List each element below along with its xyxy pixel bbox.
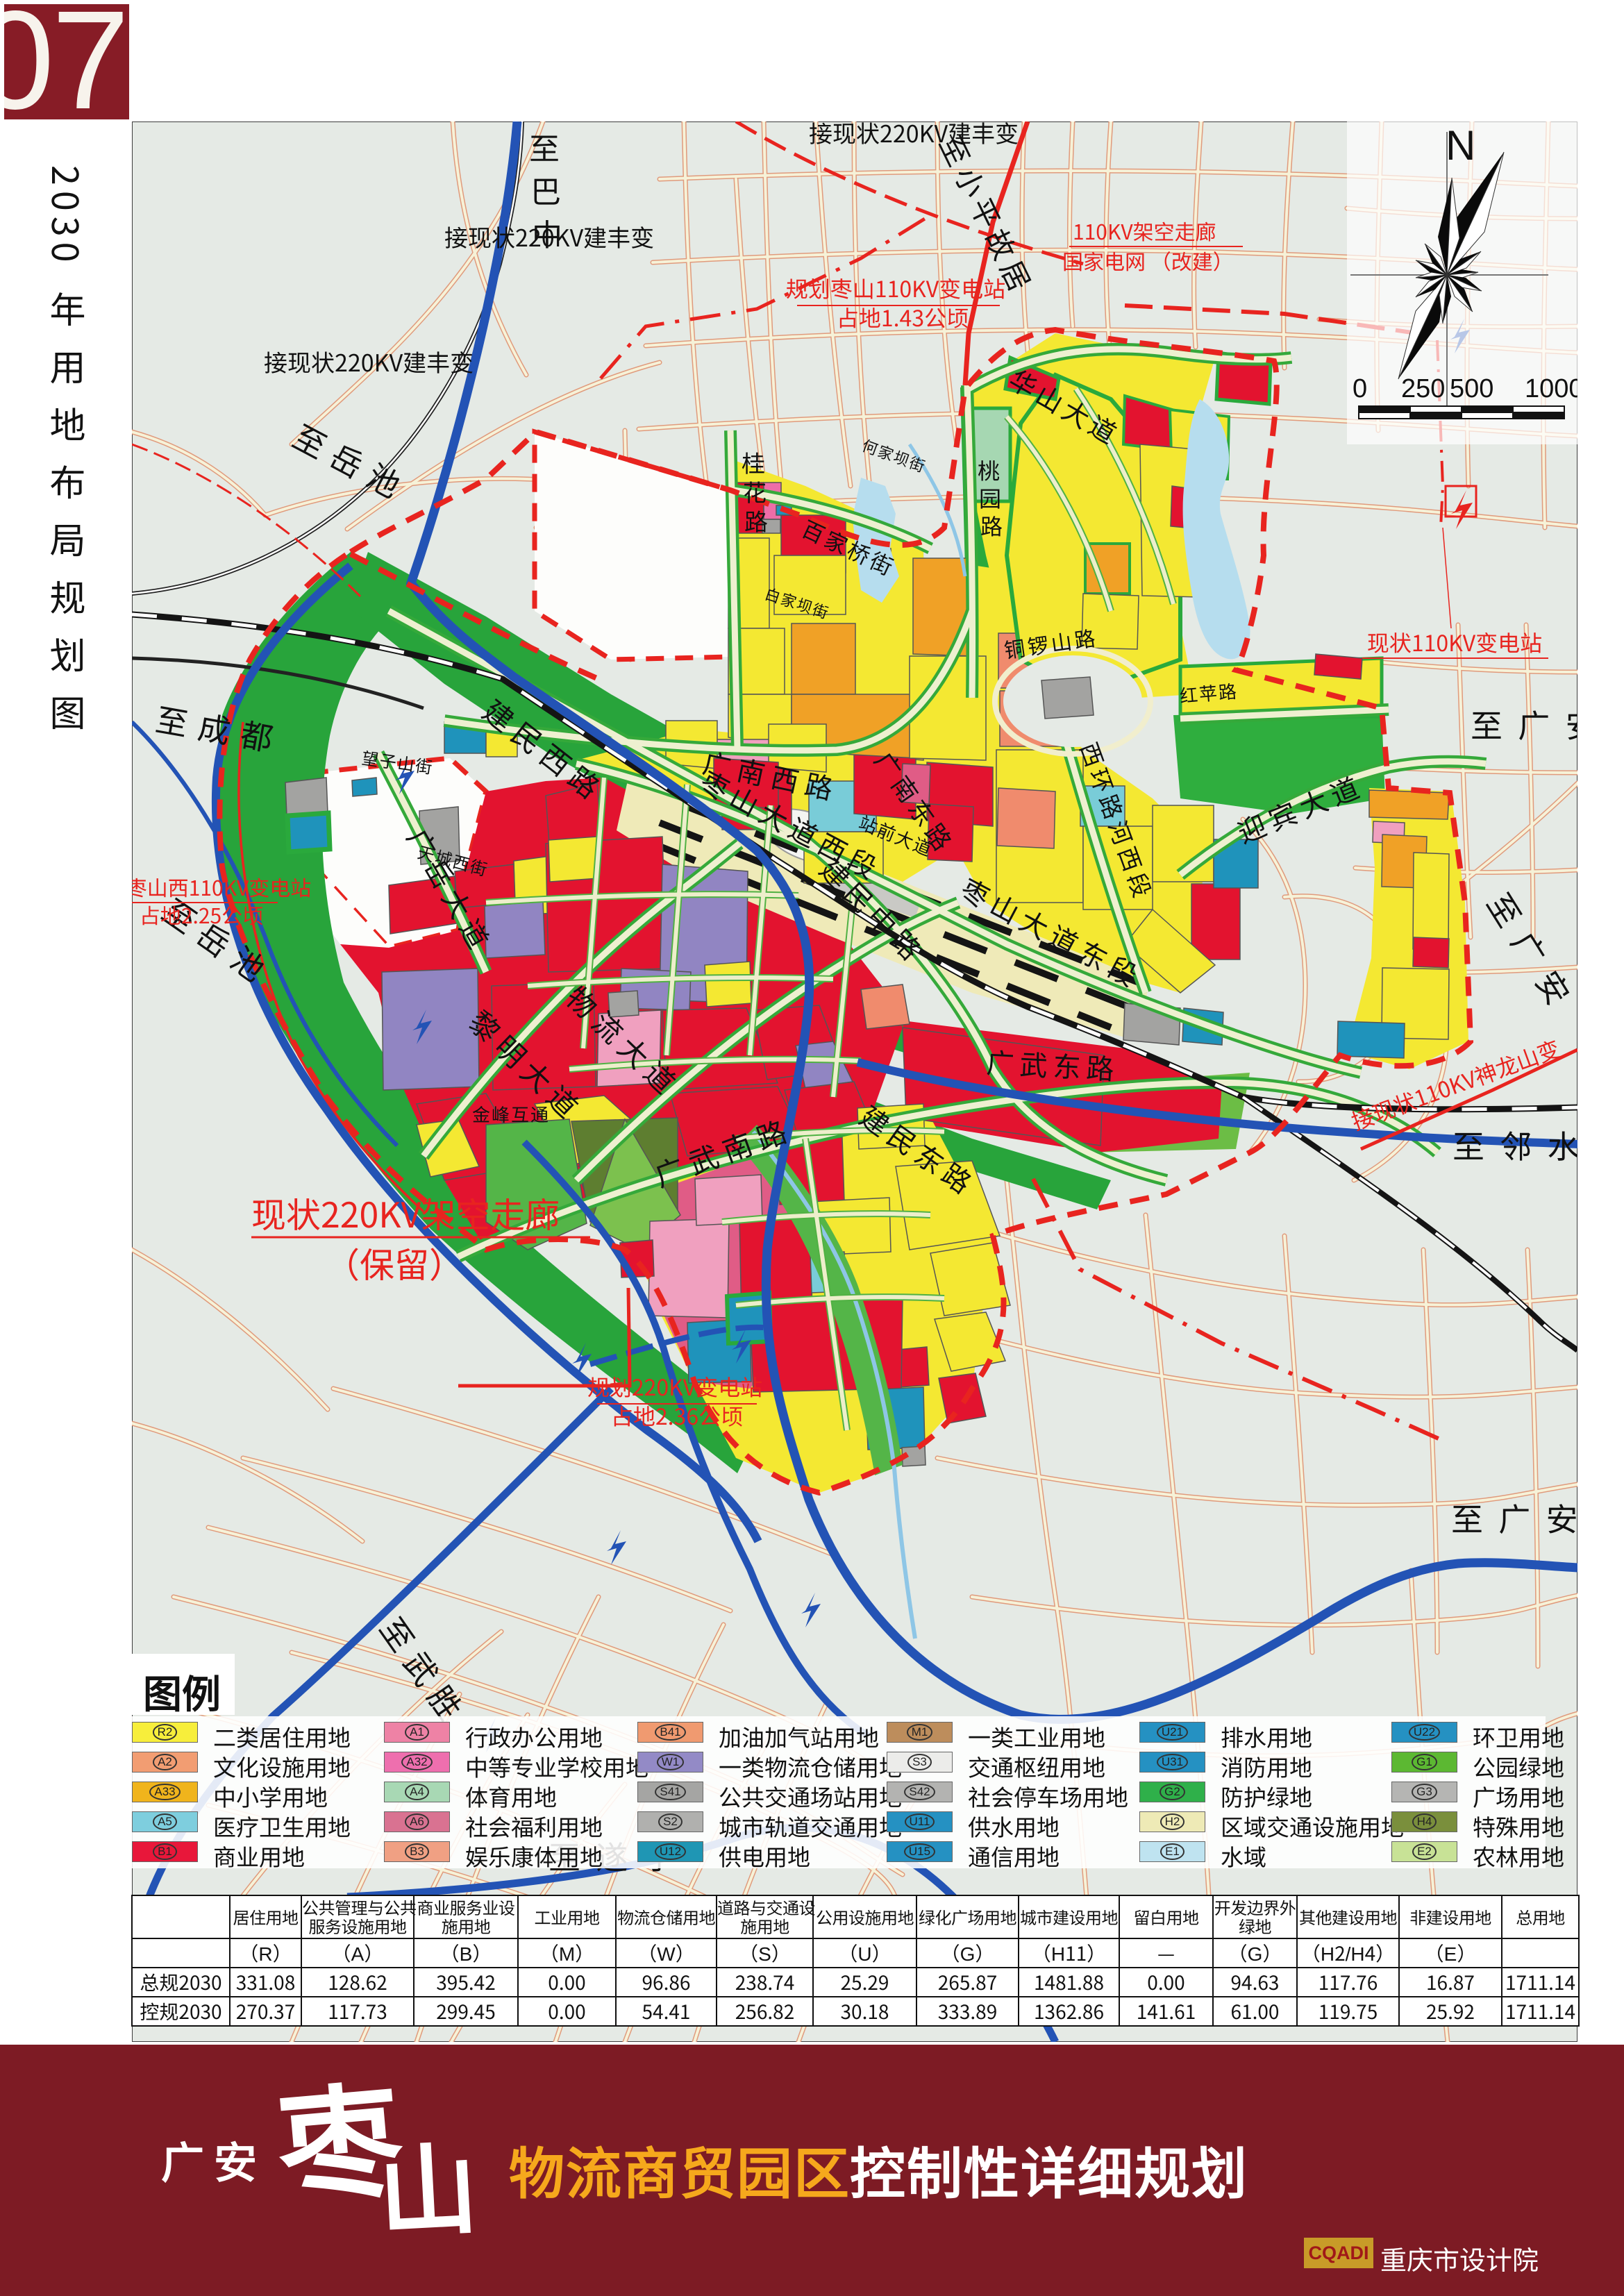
svg-text:250: 250: [1401, 374, 1445, 403]
svg-text:500: 500: [1450, 374, 1493, 403]
svg-text:（保留）: （保留）: [325, 1238, 464, 1288]
svg-text:N: N: [1446, 122, 1475, 169]
svg-text:规划220KV变电站: 规划220KV变电站: [587, 1371, 762, 1402]
svg-text:接现状220KV建丰变: 接现状220KV建丰变: [264, 344, 474, 378]
svg-text:占地2.25公顷: 占地2.25公顷: [140, 899, 263, 930]
svg-text:巴: 巴: [530, 167, 561, 212]
svg-text:金峰互通: 金峰互通: [472, 1101, 550, 1127]
svg-text:110KV架空走廊: 110KV架空走廊: [1073, 215, 1216, 246]
svg-text:接现状220KV建丰变: 接现状220KV建丰变: [809, 121, 1019, 149]
svg-text:红苹路: 红苹路: [1178, 678, 1239, 708]
svg-text:至 广 安: 至 广 安: [1471, 701, 1577, 747]
svg-text:广武东路: 广武东路: [985, 1041, 1121, 1088]
svg-text:路: 路: [744, 503, 768, 537]
svg-text:1000m: 1000m: [1525, 374, 1577, 403]
svg-text:国家电网 （改建）: 国家电网 （改建）: [1062, 245, 1234, 276]
svg-text:现状110KV变电站: 现状110KV变电站: [1367, 626, 1542, 658]
svg-text:规划枣山西110KV变电站: 规划枣山西110KV变电站: [132, 871, 311, 902]
svg-text:接现状220KV建丰变: 接现状220KV建丰变: [444, 219, 654, 253]
svg-text:至 邻 水: 至 邻 水: [1453, 1122, 1577, 1168]
svg-text:至 广 安: 至 广 安: [1451, 1495, 1577, 1541]
svg-text:路: 路: [980, 510, 1003, 542]
svg-text:现状220KV架空走廊: 现状220KV架空走廊: [251, 1188, 560, 1238]
svg-text:0: 0: [1353, 374, 1367, 403]
svg-text:规划枣山110KV变电站: 规划枣山110KV变电站: [786, 272, 1005, 304]
svg-text:至: 至: [529, 124, 560, 169]
